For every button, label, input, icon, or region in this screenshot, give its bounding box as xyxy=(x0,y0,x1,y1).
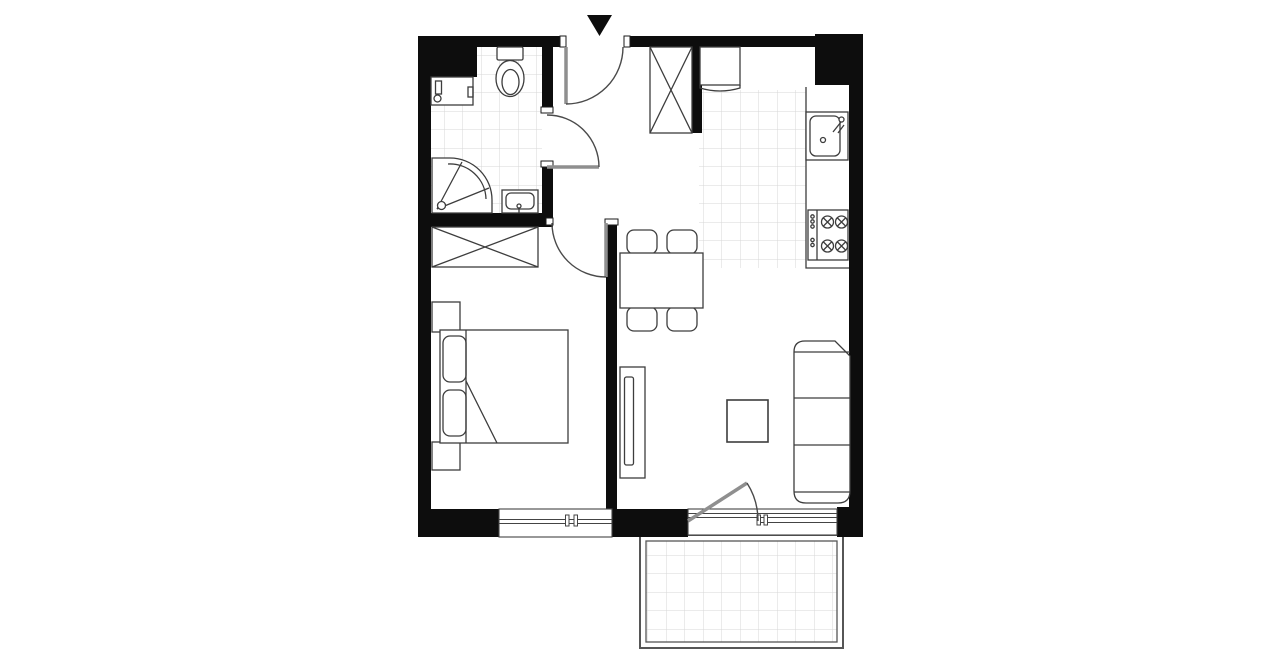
sink-faucet-base xyxy=(839,117,844,122)
dining-chair xyxy=(627,230,657,254)
nightstand-upper xyxy=(432,302,460,332)
washbasin-tap xyxy=(517,204,521,208)
wall-corner-bottom-right xyxy=(837,507,863,537)
pillow xyxy=(443,336,466,382)
hall-wardrobe xyxy=(650,47,692,133)
balcony-railing-inner xyxy=(646,541,837,642)
wall-right xyxy=(849,85,863,535)
bedroom-window-mullion xyxy=(566,515,570,526)
dining-table xyxy=(620,253,703,308)
dining-chair xyxy=(667,230,697,254)
sofa xyxy=(794,341,850,503)
toilet xyxy=(496,47,524,97)
double-bed xyxy=(440,330,568,443)
wall-bathroom-bottom xyxy=(431,213,553,227)
kitchen-tiled-floor xyxy=(699,90,806,268)
toilet-bowl xyxy=(496,61,524,97)
pillow xyxy=(443,390,466,436)
wall-bottom-middle xyxy=(606,509,688,537)
washbasin xyxy=(502,190,538,213)
living-room-window xyxy=(688,509,837,535)
sink-drain xyxy=(821,138,826,143)
entrance-door-jamb xyxy=(560,36,566,47)
sofa-body xyxy=(794,341,850,503)
kitchen-sink xyxy=(806,112,848,160)
dining-chair xyxy=(667,307,697,331)
living-window-mullion xyxy=(764,515,768,525)
wall-corner-top-right xyxy=(815,34,863,85)
bedroom-window-mullion xyxy=(574,515,578,526)
toilet-tank xyxy=(497,47,523,60)
tv-screen xyxy=(625,377,634,465)
wall-bathroom-right-upper xyxy=(542,45,553,113)
bathroom-door-jamb xyxy=(541,107,553,113)
coffee-table xyxy=(727,400,768,442)
entrance-door-jamb xyxy=(624,36,630,47)
floor-plan-canvas xyxy=(0,0,1280,667)
wall-top-right xyxy=(630,36,815,47)
fridge xyxy=(700,47,740,91)
wall-bottom-bedroom xyxy=(418,509,499,537)
washing-machine xyxy=(431,77,473,105)
bedroom-window xyxy=(499,509,612,537)
tv-stand xyxy=(620,367,645,478)
floor-plan-page xyxy=(0,0,1280,667)
bedroom-wardrobe xyxy=(432,227,538,267)
nightstand-lower xyxy=(432,442,460,470)
stove xyxy=(808,210,848,260)
balcony xyxy=(640,535,843,648)
dining-chair xyxy=(627,307,657,331)
wall-left xyxy=(418,36,431,537)
shower-drain xyxy=(438,202,446,210)
fridge-body xyxy=(700,47,740,85)
